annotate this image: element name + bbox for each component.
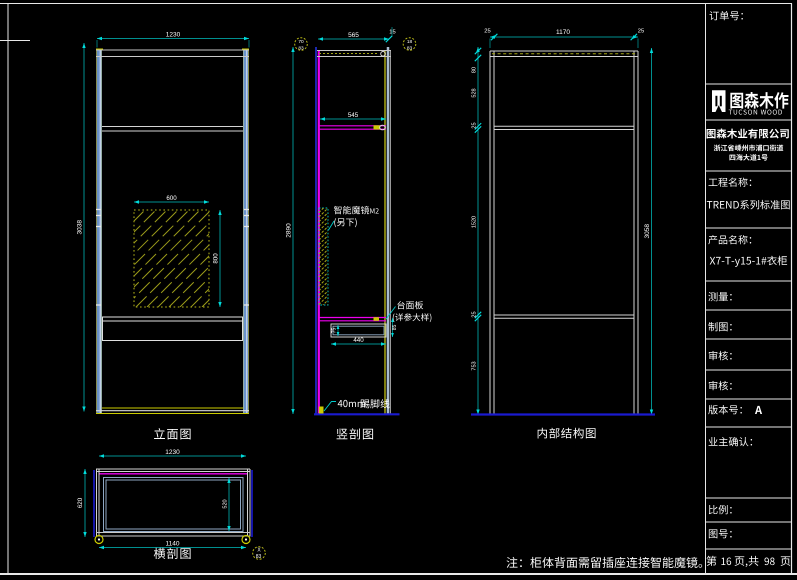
svg-text:15: 15 — [389, 30, 395, 36]
svg-text:520: 520 — [223, 499, 229, 508]
svg-text:528: 528 — [472, 88, 478, 97]
svg-text:25: 25 — [472, 311, 478, 317]
svg-text:83: 83 — [407, 45, 413, 51]
svg-text:1230: 1230 — [166, 31, 181, 38]
svg-text:85: 85 — [392, 325, 398, 331]
svg-text:75: 75 — [332, 328, 338, 334]
svg-text:1140: 1140 — [166, 540, 180, 547]
svg-text:2890: 2890 — [286, 223, 293, 238]
svg-text:18: 18 — [407, 39, 413, 45]
svg-text:25: 25 — [472, 122, 478, 128]
svg-text:1230: 1230 — [165, 449, 180, 456]
svg-text:3038: 3038 — [77, 220, 84, 235]
svg-text:70: 70 — [298, 39, 304, 45]
svg-text:800: 800 — [213, 253, 220, 264]
svg-text:83: 83 — [256, 554, 262, 560]
svg-text:753: 753 — [472, 361, 478, 370]
svg-text:600: 600 — [166, 195, 177, 202]
svg-text:83: 83 — [298, 45, 304, 51]
svg-text:1170: 1170 — [556, 29, 570, 36]
svg-text:620: 620 — [77, 497, 84, 508]
svg-text:25: 25 — [638, 29, 644, 35]
svg-text:440: 440 — [353, 337, 364, 344]
svg-text:80: 80 — [472, 67, 478, 73]
svg-text:25: 25 — [484, 29, 490, 35]
svg-text:3058: 3058 — [644, 224, 651, 239]
svg-text:545: 545 — [348, 112, 359, 119]
svg-text:1520: 1520 — [472, 216, 478, 228]
svg-text:565: 565 — [348, 32, 359, 39]
